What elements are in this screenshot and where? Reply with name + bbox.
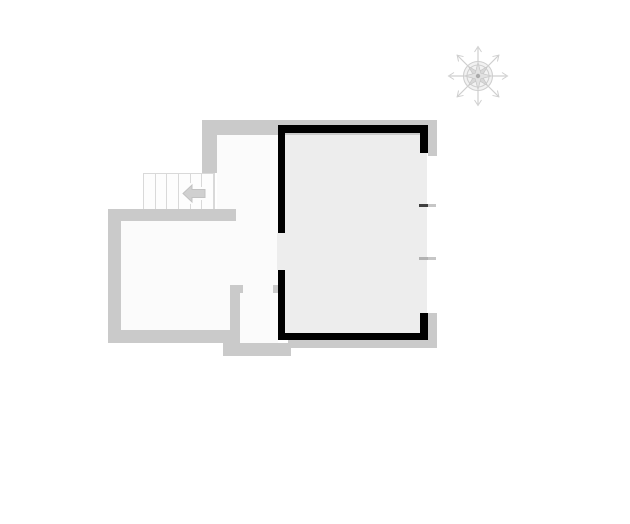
east-opening-tick-upper-inner — [419, 204, 428, 207]
east-opening-ticks-layer — [0, 0, 630, 524]
east-opening-tick-lower-outer — [428, 257, 436, 260]
compass-rose-icon — [446, 44, 510, 108]
east-opening-tick-lower-inner — [419, 257, 428, 260]
floor-plan — [0, 0, 630, 524]
east-opening-tick-upper-outer — [428, 204, 436, 207]
